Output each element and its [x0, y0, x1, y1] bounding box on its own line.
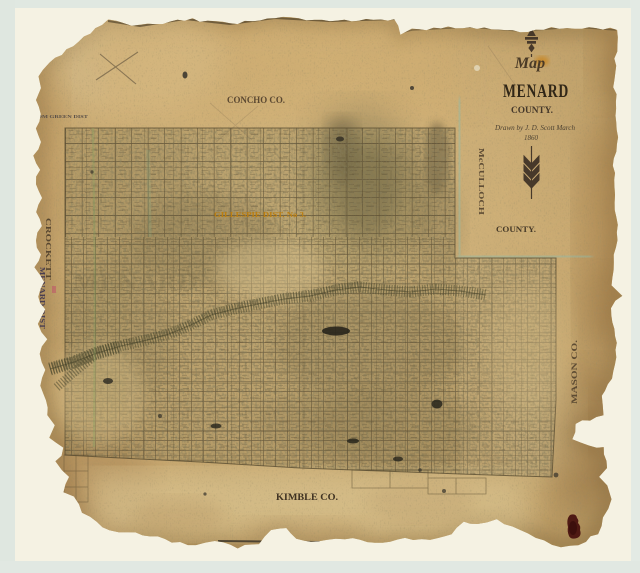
svg-text:McCULLOCH: McCULLOCH — [477, 148, 486, 215]
svg-text:MENARD: MENARD — [503, 82, 569, 102]
svg-text:COUNTY.: COUNTY. — [511, 106, 553, 116]
svg-text:MASON CO.: MASON CO. — [570, 340, 579, 404]
svg-text:MENARD: MENARD — [73, 269, 198, 296]
svg-text:GILLESPIE DIST. No 3.: GILLESPIE DIST. No 3. — [214, 210, 306, 219]
svg-text:COUNTY.: COUNTY. — [496, 224, 536, 234]
svg-text:KIMBLE CO.: KIMBLE CO. — [276, 492, 338, 502]
svg-text:CONCHO CO.: CONCHO CO. — [227, 96, 285, 106]
svg-text:TOM GREEN DIST: TOM GREEN DIST — [33, 114, 88, 119]
svg-text:Drawn by J. D. Scott March: Drawn by J. D. Scott March — [494, 123, 575, 132]
svg-text:Map: Map — [514, 55, 545, 72]
svg-text:1860: 1860 — [524, 134, 539, 142]
